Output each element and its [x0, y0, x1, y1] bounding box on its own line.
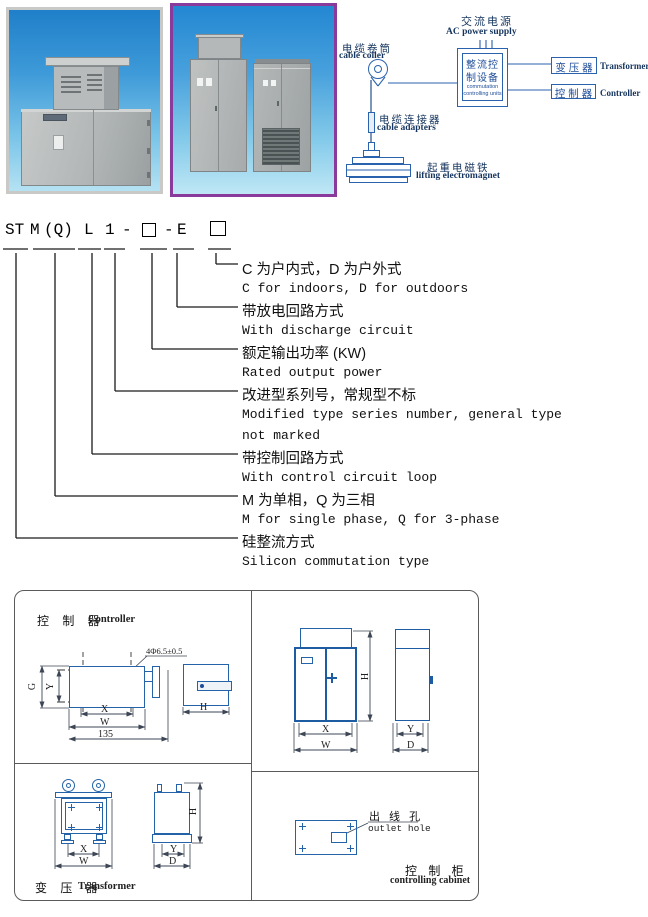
designation-4-en2: not marked	[242, 428, 320, 443]
vent-box-side	[104, 67, 118, 109]
louver	[61, 91, 81, 93]
model-token-l: L	[84, 221, 94, 239]
controller-mount-hole	[200, 684, 204, 688]
dim-label-d: D	[169, 856, 176, 867]
left-label	[197, 78, 203, 86]
designation-3-en: Rated output power	[242, 365, 382, 380]
transformer-side-base	[152, 834, 192, 843]
panel-left-horizontal-divider	[15, 763, 252, 764]
model-token-1: 1	[105, 221, 115, 239]
mount-hole-mark	[347, 845, 354, 852]
cabinet-side-hinge-tab	[429, 676, 433, 684]
controller-side-bar	[152, 666, 160, 698]
magnet-label-en: lifting electromagnet	[416, 171, 500, 181]
transformer-terminal-right-inner	[96, 783, 101, 788]
designation-4-en: Modified type series number, general typ…	[242, 407, 562, 422]
controller-front-view	[69, 666, 145, 708]
dim-label-h: H	[188, 808, 199, 815]
transformer-side-stub-right	[176, 784, 182, 792]
ac-power-label-en: AC power supply	[446, 27, 517, 37]
dim-label-w: W	[321, 740, 330, 751]
left-handle	[215, 106, 217, 111]
controller-title-en: Controller	[88, 614, 135, 625]
transformer-side-stub-left	[157, 784, 162, 792]
transformer-side-body	[154, 792, 190, 834]
cabinet-side-view	[395, 629, 430, 721]
transformer-node-label-en: Transformer	[600, 61, 648, 71]
product-photo-dual-cabinet	[170, 3, 337, 197]
louver	[61, 81, 81, 83]
dim-label-y: Y	[45, 683, 56, 690]
rectifier-label-en1: commutation	[462, 84, 503, 90]
dim-label-y: Y	[407, 724, 414, 735]
left-vent-box	[198, 37, 241, 59]
cabinet-nameplate	[301, 657, 313, 664]
dim-label-g: G	[27, 683, 38, 690]
hinge	[147, 148, 150, 154]
transformer-title-en: Transformer	[78, 881, 136, 892]
bolt-mark	[96, 824, 103, 831]
cabinet-door-line	[93, 110, 94, 185]
louver	[87, 89, 102, 91]
transformer-terminal-left-inner	[66, 783, 71, 788]
switch-box	[53, 135, 64, 150]
designation-2-en: With discharge circuit	[242, 323, 414, 338]
louver	[61, 76, 81, 78]
dim-label-x: X	[80, 844, 87, 855]
designation-7-en: Silicon commutation type	[242, 554, 429, 569]
outlet-hole-label-en: outlet hole	[368, 823, 431, 834]
dim-label-h: H	[200, 702, 207, 713]
dim-label-w: W	[79, 856, 88, 867]
controller-node-label: 控 制 器	[551, 86, 596, 101]
magnet-disc-body	[346, 164, 411, 177]
bolt-mark	[68, 804, 75, 811]
left-label	[206, 78, 212, 86]
designation-1-zh: C 为户内式，D 为户外式	[242, 258, 402, 279]
right-label	[271, 80, 276, 86]
bolt-mark	[96, 804, 103, 811]
cable-adapter-label-en: cable adapters	[377, 123, 436, 133]
dim-label-x: X	[101, 704, 108, 715]
hole-annotation: 4Φ6.5±0.5	[146, 646, 182, 656]
designation-4-zh: 改进型系列号，常规型不标	[242, 384, 416, 405]
outlet-hole-label-zh: 出 线 孔	[369, 808, 423, 824]
right-label	[263, 80, 268, 86]
dim-label-x: X	[322, 724, 329, 735]
transformer-node-label: 变 压 器	[551, 60, 597, 75]
cable-adapter-symbol	[368, 112, 375, 133]
left-cabinet-door-line	[218, 60, 219, 171]
cabinet-hood-front	[300, 628, 352, 648]
mount-hole-mark	[347, 823, 354, 830]
hinge	[147, 172, 150, 178]
designation-6-en: M for single phase, Q for 3-phase	[242, 512, 499, 527]
cabinet-caption-en: controlling cabinet	[390, 875, 470, 886]
dim-label-h: H	[360, 673, 371, 680]
magnet-disc-rim	[349, 177, 408, 183]
designation-tree-lines	[3, 249, 238, 538]
vent-box-lid	[45, 57, 130, 66]
vent-grille	[262, 128, 300, 165]
louver	[61, 86, 81, 88]
dim-label-d: D	[407, 740, 414, 751]
model-token-dash1: -	[122, 221, 132, 239]
model-blank-box-1	[142, 223, 156, 237]
louver	[87, 84, 102, 86]
magnet-flange	[363, 150, 380, 157]
bolt-mark	[68, 824, 75, 831]
designation-5-zh: 带控制回路方式	[242, 447, 344, 468]
rectifier-label-en2: controlling units	[462, 91, 503, 97]
cabinet-side-band-line	[396, 648, 429, 649]
model-blank-box-2	[210, 221, 226, 236]
designation-5-en: With control circuit loop	[242, 470, 437, 485]
controller-node-label-en: Controller	[600, 88, 640, 98]
outlet-hole-rect	[331, 832, 347, 843]
mount-hole-mark	[299, 845, 306, 852]
louver	[87, 79, 102, 81]
designation-6-zh: M 为单相，Q 为三相	[242, 489, 375, 510]
model-token-dash2: -	[164, 221, 174, 239]
designation-7-zh: 硅整流方式	[242, 531, 315, 552]
model-token-e: E	[177, 221, 187, 239]
dim-label-135: 135	[98, 729, 113, 740]
pulley-inner-circle	[374, 65, 382, 73]
cabinet-body	[21, 109, 151, 186]
transformer-foot-right-base	[93, 840, 106, 844]
nameplate	[43, 114, 67, 121]
panel-vertical-divider	[251, 591, 252, 900]
designation-2-zh: 带放电回路方式	[242, 300, 344, 321]
transformer-foot-left-base	[61, 840, 74, 844]
model-token-q: (Q)	[44, 221, 73, 239]
rectifier-label-zh2: 制设备	[462, 69, 503, 84]
right-cabinet-band	[254, 68, 310, 69]
right-handle	[277, 101, 279, 106]
dim-label-w: W	[100, 717, 109, 728]
model-token-m: M	[30, 221, 40, 239]
product-photo-single-cabinet	[6, 7, 163, 194]
designation-1-en: C for indoors, D for outdoors	[242, 281, 468, 296]
dim-label-y: Y	[170, 844, 177, 855]
hinge	[147, 120, 150, 126]
cabinet-handle-cross	[327, 673, 337, 683]
louver	[87, 74, 102, 76]
panel-right-horizontal-divider	[252, 771, 478, 772]
designation-3-zh: 额定输出功率 (KW)	[242, 342, 366, 363]
cabinet-door-divider	[325, 647, 327, 722]
mount-hole-mark	[299, 823, 306, 830]
magnet-disc-top	[352, 157, 404, 164]
model-token-st: ST	[5, 221, 24, 239]
